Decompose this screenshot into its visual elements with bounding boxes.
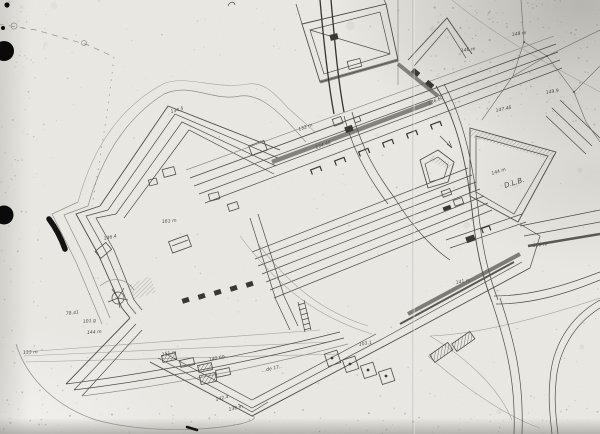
fort-plan-drawing: 148 m146 m149.9147.45144 mD.L.B.132 m134… [0,0,600,434]
scanned-fort-plan-image: 148 m146 m149.9147.45144 mD.L.B.132 m134… [0,0,600,434]
annotation-label: 133 m [23,349,39,356]
ink-blob [4,2,9,7]
annotation-label: 144 m [87,329,103,336]
ink-blob [1,26,5,30]
